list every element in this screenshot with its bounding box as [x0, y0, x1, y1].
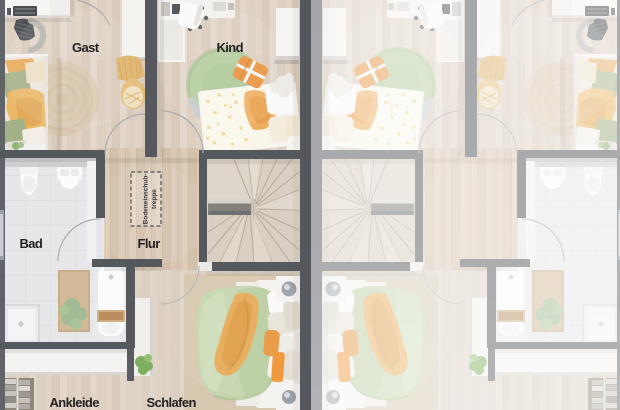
- svg-text:Kind: Kind: [217, 40, 244, 55]
- svg-text:treppe: treppe: [151, 189, 158, 209]
- svg-text:Schlafen: Schlafen: [147, 395, 197, 410]
- svg-text:Bad: Bad: [20, 236, 43, 251]
- svg-text:Ankleide: Ankleide: [50, 395, 100, 410]
- svg-text:Bodeneinschub-: Bodeneinschub-: [143, 174, 150, 225]
- svg-text:Flur: Flur: [138, 236, 161, 251]
- svg-text:Gast: Gast: [72, 40, 100, 55]
